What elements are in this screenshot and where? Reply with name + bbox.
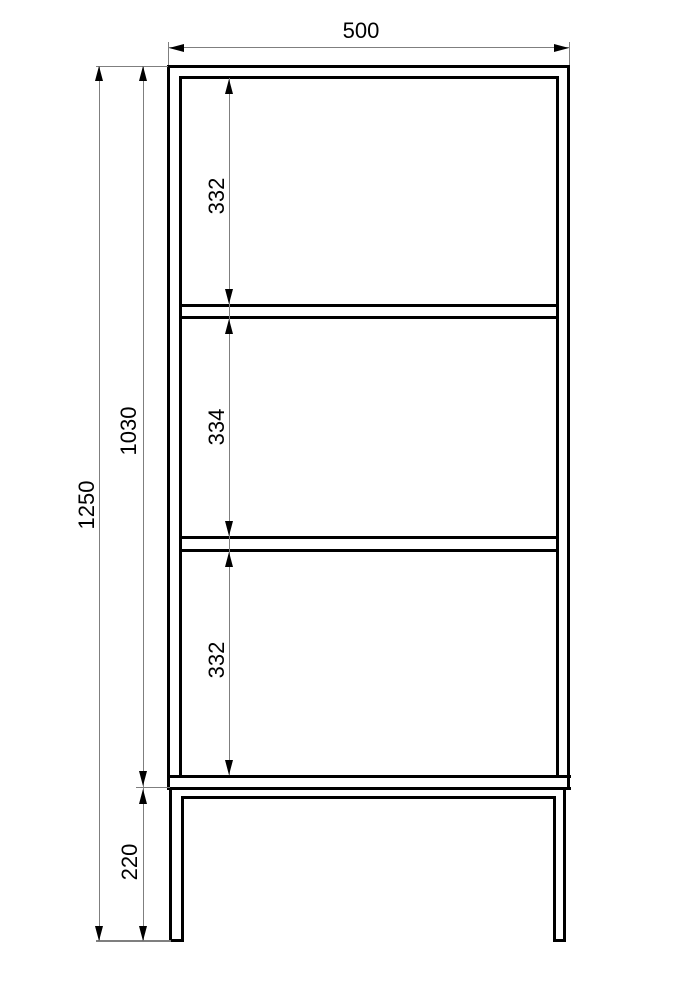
dimension-label-section-bottom: 332 <box>206 642 228 679</box>
arrowhead-down-icon <box>225 760 233 775</box>
arrowhead-left-icon <box>169 44 184 52</box>
arrowhead-down-icon <box>225 521 233 536</box>
left-leg-inner-line <box>181 796 184 942</box>
dimension-label-total-height: 1250 <box>76 481 98 530</box>
arrowhead-up-icon <box>139 789 147 804</box>
dimension-label-leg-height: 220 <box>119 844 141 881</box>
right-wall-inner-line <box>556 76 559 776</box>
top-panel-bottom-line <box>180 76 557 79</box>
mid-ext-line <box>136 787 170 789</box>
right-leg-bottom-line <box>553 939 567 942</box>
arrowhead-up-icon <box>225 552 233 567</box>
dimension-label-section-top: 332 <box>206 178 228 215</box>
left-wall-outer-line <box>167 65 170 790</box>
shelf2-bottom-line <box>180 549 557 552</box>
dimension-drawing-canvas: 500 1250 1030 220 332 334 332 <box>0 0 678 982</box>
arrowhead-down-icon <box>139 771 147 786</box>
arrowhead-up-icon <box>225 79 233 94</box>
arrowhead-up-icon <box>95 66 103 81</box>
right-leg-inner-line <box>553 796 556 942</box>
shelf1-top-line <box>180 304 557 307</box>
body-height-dim-line <box>143 66 145 941</box>
top-ext-line <box>96 66 168 68</box>
right-leg-outer-line <box>563 787 566 941</box>
arrowhead-right-icon <box>554 44 569 52</box>
arrowhead-up-icon <box>139 66 147 81</box>
left-leg-outer-line <box>169 787 172 941</box>
arrowhead-down-icon <box>95 926 103 941</box>
left-wall-inner-line <box>179 76 182 776</box>
bottom-panel-bottom-line <box>167 787 571 790</box>
dimension-label-section-middle: 334 <box>206 409 228 446</box>
dimension-label-width: 500 <box>343 20 380 42</box>
arrowhead-up-icon <box>225 319 233 334</box>
arrowhead-down-icon <box>139 926 147 941</box>
right-wall-outer-line <box>567 65 570 790</box>
top-panel-top-line <box>167 65 570 68</box>
apron-bottom-line <box>182 796 553 799</box>
dimension-label-body-height: 1030 <box>118 407 140 456</box>
arrowhead-down-icon <box>225 289 233 304</box>
shelf2-top-line <box>180 536 557 539</box>
width-dim-line <box>168 47 570 49</box>
bottom-ext-line <box>96 940 171 942</box>
shelf1-bottom-line <box>180 316 557 319</box>
left-leg-bottom-line <box>169 939 184 942</box>
